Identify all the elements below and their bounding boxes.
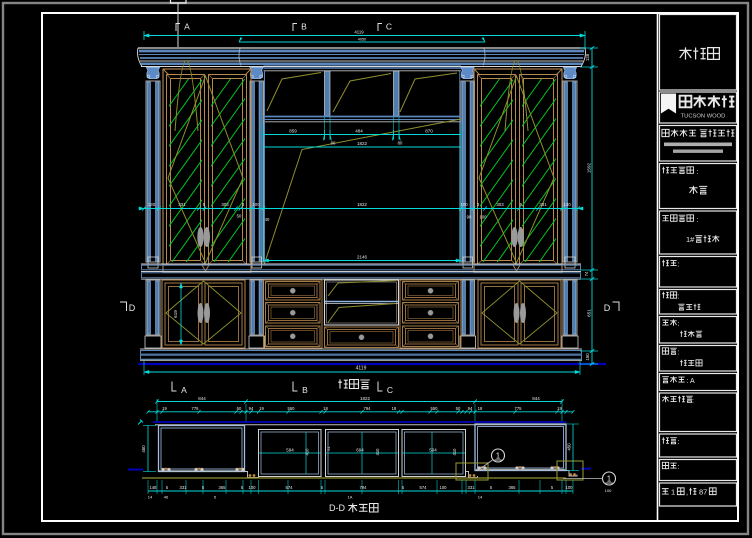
svg-text:: A: : A xyxy=(687,378,696,385)
svg-text:410: 410 xyxy=(305,448,310,456)
svg-text:1822: 1822 xyxy=(357,141,368,146)
svg-text:859: 859 xyxy=(289,129,297,134)
svg-text:14: 14 xyxy=(478,495,483,500)
svg-text:410: 410 xyxy=(452,448,457,456)
svg-text:18: 18 xyxy=(478,406,483,411)
svg-text:694: 694 xyxy=(356,448,364,453)
svg-text:331: 331 xyxy=(178,202,186,207)
svg-text:870: 870 xyxy=(425,129,433,134)
svg-text:C: C xyxy=(387,385,393,395)
svg-text::: : xyxy=(697,217,699,224)
svg-text:594: 594 xyxy=(286,448,294,453)
svg-text:450: 450 xyxy=(141,445,146,453)
svg-text:74: 74 xyxy=(584,271,589,276)
svg-text:19: 19 xyxy=(557,406,562,411)
svg-text:594: 594 xyxy=(429,448,437,453)
svg-text:D: D xyxy=(604,303,611,313)
svg-text:1: 1 xyxy=(607,475,612,484)
svg-text:484: 484 xyxy=(355,129,363,134)
svg-text:14: 14 xyxy=(148,495,153,500)
svg-text:410: 410 xyxy=(375,448,380,456)
svg-text::: : xyxy=(678,294,680,301)
svg-text::: : xyxy=(678,262,680,269)
svg-text:1592: 1592 xyxy=(587,162,592,173)
svg-text:50: 50 xyxy=(237,214,242,219)
svg-text::: : xyxy=(678,464,680,471)
svg-text::: : xyxy=(678,439,680,446)
svg-text:100: 100 xyxy=(566,485,574,490)
svg-text:1: 1 xyxy=(496,452,501,461)
svg-text:2146: 2146 xyxy=(357,255,368,260)
svg-text:450: 450 xyxy=(567,443,572,451)
svg-text:19: 19 xyxy=(259,406,264,411)
svg-text:331: 331 xyxy=(180,485,188,490)
svg-text:18: 18 xyxy=(392,406,397,411)
svg-text:19: 19 xyxy=(162,406,167,411)
svg-text:100: 100 xyxy=(440,485,448,490)
svg-text:90: 90 xyxy=(467,215,472,220)
svg-text:A: A xyxy=(181,385,187,395)
svg-text:844: 844 xyxy=(532,396,540,401)
svg-text:94: 94 xyxy=(249,406,254,411)
svg-text:574: 574 xyxy=(420,485,428,490)
svg-text:1822: 1822 xyxy=(360,396,371,401)
svg-text:100: 100 xyxy=(252,202,260,207)
svg-text:4119: 4119 xyxy=(356,366,367,372)
svg-text:40: 40 xyxy=(265,217,270,222)
svg-text:1A: 1A xyxy=(348,495,353,500)
svg-text:TUCSON WOOD: TUCSON WOOD xyxy=(681,114,726,120)
svg-text:A: A xyxy=(184,22,190,32)
svg-text:1822: 1822 xyxy=(357,202,367,207)
svg-text::: : xyxy=(678,321,680,328)
svg-text:844: 844 xyxy=(198,396,206,401)
svg-text:775: 775 xyxy=(515,406,523,411)
svg-text::: : xyxy=(678,350,680,357)
svg-text:51: 51 xyxy=(326,446,331,451)
svg-text:303: 303 xyxy=(221,202,229,207)
svg-text:550: 550 xyxy=(288,406,296,411)
svg-text:94: 94 xyxy=(468,406,473,411)
svg-text::: : xyxy=(697,169,699,176)
svg-text:130: 130 xyxy=(148,202,156,207)
svg-text:138: 138 xyxy=(585,53,590,61)
svg-text:331: 331 xyxy=(468,485,476,490)
svg-text:80: 80 xyxy=(398,141,403,146)
svg-text:50: 50 xyxy=(456,406,461,411)
svg-text:100: 100 xyxy=(249,485,257,490)
svg-text:130: 130 xyxy=(563,202,571,207)
svg-text:B: B xyxy=(302,385,308,395)
svg-text:331: 331 xyxy=(539,202,547,207)
svg-text:100: 100 xyxy=(605,488,612,493)
svg-text:18: 18 xyxy=(323,406,328,411)
svg-text:775: 775 xyxy=(192,406,200,411)
svg-text::: : xyxy=(692,398,694,405)
svg-text:4050: 4050 xyxy=(358,37,366,41)
svg-text:D: D xyxy=(129,303,136,313)
svg-text:365: 365 xyxy=(219,485,227,490)
svg-text:150: 150 xyxy=(585,353,590,361)
svg-text:100: 100 xyxy=(460,202,468,207)
svg-text:550: 550 xyxy=(431,406,439,411)
svg-text:1#: 1# xyxy=(686,235,695,244)
svg-text:1: 1 xyxy=(671,488,675,497)
svg-text:651: 651 xyxy=(587,309,592,317)
svg-text:D-D: D-D xyxy=(329,503,345,513)
svg-text:80: 80 xyxy=(331,141,336,146)
svg-text:303: 303 xyxy=(496,202,504,207)
svg-text:574: 574 xyxy=(286,485,294,490)
svg-text:619: 619 xyxy=(173,310,178,318)
svg-text:100: 100 xyxy=(480,215,488,220)
svg-text:794: 794 xyxy=(364,406,372,411)
svg-text:50: 50 xyxy=(237,406,242,411)
svg-text:B: B xyxy=(301,22,307,32)
svg-text:87: 87 xyxy=(699,488,707,497)
svg-text:,: , xyxy=(686,488,688,497)
svg-text:4119: 4119 xyxy=(354,30,364,35)
svg-text:C: C xyxy=(386,22,392,32)
svg-text:794: 794 xyxy=(360,485,368,490)
svg-text:148: 148 xyxy=(150,485,158,490)
svg-text:365: 365 xyxy=(509,485,517,490)
svg-text:46: 46 xyxy=(164,495,169,500)
